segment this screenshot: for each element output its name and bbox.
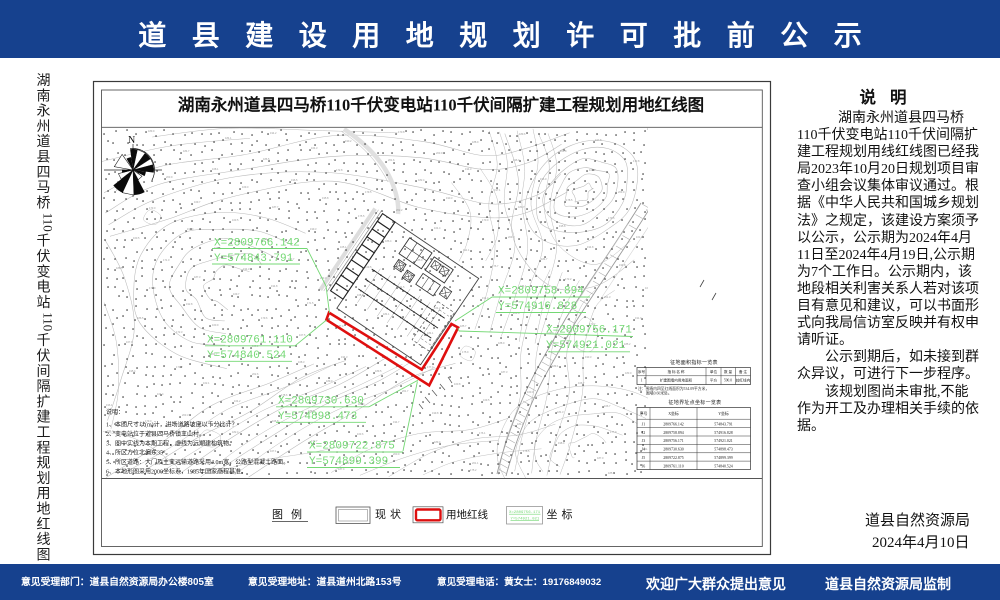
svg-text:194.8: 194.8 [271, 284, 278, 288]
svg-text:194.3: 194.3 [243, 267, 250, 271]
svg-text:201.6: 201.6 [388, 158, 395, 162]
svg-text:175.5: 175.5 [358, 214, 365, 218]
svg-text:194.8: 194.8 [619, 263, 626, 267]
svg-text:191.4: 191.4 [445, 272, 452, 276]
svg-text:167.9: 167.9 [126, 340, 133, 344]
svg-text:194.3: 194.3 [341, 355, 348, 359]
svg-text:2809761.110: 2809761.110 [663, 464, 683, 468]
svg-text:177.4: 177.4 [427, 365, 434, 369]
svg-text:J1: J1 [642, 422, 646, 426]
svg-text:160.8: 160.8 [454, 382, 461, 386]
svg-text:194.7: 194.7 [393, 420, 400, 424]
svg-text:161.2: 161.2 [636, 235, 643, 239]
svg-text:196.0: 196.0 [540, 177, 547, 181]
svg-text:574898.473: 574898.473 [714, 448, 733, 452]
svg-text:166.7: 166.7 [578, 381, 585, 385]
svg-text:2809758.894: 2809758.894 [663, 431, 683, 435]
svg-text:574921.021: 574921.021 [714, 439, 733, 443]
svg-text:2、变电站位于道县四马桥镇立山村。: 2、变电站位于道县四马桥镇立山村。 [106, 430, 205, 438]
svg-text:2809722.875: 2809722.875 [663, 456, 683, 460]
svg-text:指 标 名 称: 指 标 名 称 [667, 369, 684, 374]
svg-text:184.7: 184.7 [541, 257, 548, 261]
svg-text:3、图中实线为本期工程，虚线为远期建构筑物。: 3、图中实线为本期工程，虚线为远期建构筑物。 [106, 439, 235, 447]
svg-text:167.8: 167.8 [595, 138, 602, 142]
svg-text:195.4: 195.4 [187, 227, 194, 231]
svg-text:187.3: 187.3 [501, 370, 508, 374]
svg-text:175.2: 175.2 [470, 468, 477, 472]
svg-text:177.9: 177.9 [610, 430, 617, 434]
svg-text:187.3: 187.3 [194, 275, 201, 279]
svg-text:186.5: 186.5 [137, 316, 144, 320]
svg-text:178.9: 178.9 [149, 286, 156, 290]
svg-text:170.0: 170.0 [482, 218, 489, 222]
svg-text:203.9: 203.9 [436, 151, 443, 155]
svg-text:2809766.142: 2809766.142 [663, 422, 683, 426]
svg-text:Y=574916.828: Y=574916.828 [498, 301, 577, 313]
svg-text:189.6: 189.6 [519, 132, 526, 136]
svg-text:序号: 序号 [638, 369, 646, 374]
svg-text:169.0: 169.0 [242, 185, 249, 189]
svg-text:J6: J6 [642, 464, 646, 468]
svg-text:199.8: 199.8 [432, 411, 439, 415]
svg-text:180.7: 180.7 [518, 205, 525, 209]
svg-text:190.3: 190.3 [446, 196, 453, 200]
svg-text:201.7: 201.7 [402, 389, 409, 393]
svg-text:189.5: 189.5 [375, 369, 382, 373]
svg-text:193.3: 193.3 [585, 355, 592, 359]
svg-text:170.5: 170.5 [608, 216, 615, 220]
svg-text:168.1: 168.1 [212, 167, 219, 171]
svg-text:176.1: 176.1 [479, 431, 486, 435]
svg-text:6、本地形图采用2000坐标系，1985年国家高程基准。: 6、本地形图采用2000坐标系，1985年国家高程基准。 [106, 468, 247, 476]
svg-text:203.9: 203.9 [166, 175, 173, 179]
svg-text:189.4: 189.4 [434, 440, 441, 444]
svg-text:171.5: 171.5 [307, 301, 314, 305]
svg-text:183.0: 183.0 [625, 371, 632, 375]
svg-text:202.6: 202.6 [252, 372, 259, 376]
svg-text:2809730.630: 2809730.630 [663, 448, 683, 452]
svg-text:184.1: 184.1 [225, 136, 232, 140]
svg-text:169.5: 169.5 [483, 398, 490, 402]
svg-text:164.2: 164.2 [434, 306, 441, 310]
svg-text:169.7: 169.7 [194, 200, 201, 204]
svg-text:说明：: 说明： [106, 408, 124, 416]
svg-text:170.8: 170.8 [398, 130, 405, 134]
svg-text:194.3: 194.3 [465, 167, 472, 171]
svg-text:数 量: 数 量 [724, 369, 732, 374]
svg-text:Y=574843.791: Y=574843.791 [214, 253, 294, 265]
svg-text:574899.399: 574899.399 [714, 456, 733, 460]
svg-text:195.8: 195.8 [322, 196, 329, 200]
svg-text:163.6: 163.6 [357, 432, 364, 436]
svg-text:172.8: 172.8 [336, 168, 343, 172]
svg-text:173.2: 173.2 [176, 365, 183, 369]
svg-text:188.9: 188.9 [472, 140, 479, 144]
svg-text:189.1: 189.1 [552, 364, 559, 368]
svg-text:168.1: 168.1 [357, 293, 364, 297]
svg-text:征地界址点坐标一览表: 征地界址点坐标一览表 [668, 399, 721, 406]
svg-text:Y=574898.473: Y=574898.473 [278, 411, 357, 423]
svg-text:188.5: 188.5 [116, 266, 123, 270]
svg-text:196.5: 196.5 [291, 178, 298, 182]
svg-text:用地红线: 用地红线 [446, 508, 488, 521]
svg-text:171.0: 171.0 [163, 258, 170, 262]
svg-text:注：围墙内四至红线面积为534.09平方米，: 注：围墙内四至红线面积为534.09平方米， [638, 386, 709, 391]
svg-text:185.7: 185.7 [608, 471, 615, 475]
svg-text:184.3: 184.3 [557, 410, 564, 414]
svg-text:167.1: 167.1 [270, 449, 277, 453]
svg-text:168.3: 168.3 [298, 360, 305, 364]
svg-text:191.1: 191.1 [463, 248, 470, 252]
svg-text:单位: 单位 [710, 369, 718, 374]
svg-text:1、本图尺寸以(m)计，进场道路坡度以千分比计？: 1、本图尺寸以(m)计，进场道路坡度以千分比计？ [106, 421, 238, 429]
svg-text:围墙0.60米处。: 围墙0.60米处。 [646, 391, 672, 396]
svg-text:164.3: 164.3 [311, 146, 318, 150]
svg-text:172.3: 172.3 [176, 330, 183, 334]
svg-text:现状: 现状 [375, 507, 405, 521]
svg-text:163.8: 163.8 [560, 149, 567, 153]
svg-text:165.1: 165.1 [340, 245, 347, 249]
svg-text:188.9: 188.9 [498, 341, 505, 345]
svg-text:征地面积指标一览表: 征地面积指标一览表 [670, 359, 718, 366]
svg-text:203.9: 203.9 [618, 190, 625, 194]
svg-text:204.7: 204.7 [508, 235, 515, 239]
svg-text:平方: 平方 [710, 378, 718, 383]
svg-text:较红线内: 较红线内 [736, 378, 751, 383]
svg-text:Y=574840.524: Y=574840.524 [207, 350, 287, 362]
svg-text:185.7: 185.7 [460, 324, 467, 328]
svg-text:178.5: 178.5 [523, 449, 530, 453]
svg-text:195.8: 195.8 [559, 224, 566, 228]
svg-text:163.5: 163.5 [232, 218, 239, 222]
svg-text:175.9: 175.9 [462, 350, 469, 354]
svg-text:178.5: 178.5 [566, 198, 573, 202]
svg-text:187.7: 187.7 [272, 205, 279, 209]
svg-text:181.4: 181.4 [517, 422, 524, 426]
svg-text:4、所区方位北偏东35°。: 4、所区方位北偏东35°。 [106, 449, 171, 457]
svg-text:169.7: 169.7 [233, 292, 240, 296]
svg-text:182.4: 182.4 [418, 178, 425, 182]
svg-text:194.2: 194.2 [270, 131, 277, 135]
svg-text:179.5: 179.5 [365, 190, 372, 194]
svg-text:194.8: 194.8 [587, 245, 594, 249]
svg-text:Y=574921.021: Y=574921.021 [546, 340, 626, 352]
svg-text:198.4: 198.4 [558, 441, 565, 445]
svg-text:186.5: 186.5 [263, 157, 270, 161]
svg-text:574843.791: 574843.791 [714, 422, 733, 426]
svg-text:Y=574899.399: Y=574899.399 [309, 456, 388, 468]
svg-text:N: N [128, 135, 135, 146]
svg-text:590.0: 590.0 [724, 379, 732, 383]
svg-text:190.2: 190.2 [345, 139, 352, 143]
svg-text:195.4: 195.4 [129, 369, 136, 373]
svg-text:184.1: 184.1 [427, 331, 434, 335]
svg-text:172.2: 172.2 [565, 277, 572, 281]
svg-text:X=2809761.110: X=2809761.110 [207, 335, 293, 347]
svg-text:186.4: 186.4 [385, 239, 392, 243]
svg-text:197.1: 197.1 [494, 188, 501, 192]
svg-text:5、所区道路：大门及主变运输道路采用4.0m宽，公路型混凝土: 5、所区道路：大门及主变运输道路采用4.0m宽，公路型混凝土路面。 [106, 458, 289, 466]
svg-text:196.4: 196.4 [513, 158, 520, 162]
svg-text:164.2: 164.2 [234, 399, 241, 403]
svg-text:191.5: 191.5 [398, 285, 405, 289]
svg-text:160.2: 160.2 [589, 168, 596, 172]
svg-text:Y坐标: Y坐标 [718, 411, 729, 416]
svg-text:160.9: 160.9 [212, 323, 219, 327]
svg-text:166.7: 166.7 [604, 404, 611, 408]
svg-text:160.0: 160.0 [527, 390, 534, 394]
svg-text:162.1: 162.1 [203, 381, 210, 385]
svg-text:203.3: 203.3 [182, 413, 189, 417]
svg-text:196.1: 196.1 [106, 403, 113, 407]
svg-text:200.9: 200.9 [393, 452, 400, 456]
svg-text:X=2809758.894: X=2809758.894 [498, 286, 584, 298]
svg-text:160.5: 160.5 [133, 236, 140, 240]
svg-text:扩建围墙内用地面积: 扩建围墙内用地面积 [660, 378, 693, 383]
svg-text:187.0: 187.0 [597, 456, 604, 460]
svg-text:169.5: 169.5 [365, 265, 372, 269]
svg-text:J4: J4 [642, 448, 646, 452]
svg-text:191.7: 191.7 [635, 316, 642, 320]
svg-text:2809756.171: 2809756.171 [663, 439, 683, 443]
svg-text:X坐标: X坐标 [668, 411, 679, 416]
svg-text:202.2: 202.2 [396, 208, 403, 212]
svg-text:164.4: 164.4 [434, 226, 441, 230]
svg-text:189.0: 189.0 [326, 379, 333, 383]
svg-text:184.1: 184.1 [383, 312, 390, 316]
svg-text:J5: J5 [642, 456, 646, 460]
svg-text:坐标: 坐标 [547, 507, 577, 521]
svg-text:574916.828: 574916.828 [714, 431, 733, 435]
svg-text:176.7: 176.7 [492, 264, 499, 268]
svg-text:164.4: 164.4 [157, 392, 164, 396]
svg-text:X=2809766.142: X=2809766.142 [214, 238, 300, 250]
svg-text:201.1: 201.1 [472, 461, 479, 465]
svg-text:图例: 图例 [272, 507, 310, 521]
svg-text:574840.524: 574840.524 [714, 464, 733, 468]
svg-text:184.7: 184.7 [183, 149, 190, 153]
svg-text:201.3: 201.3 [604, 295, 611, 299]
svg-text:173.0: 173.0 [149, 206, 156, 210]
svg-text:167.5: 167.5 [299, 333, 306, 337]
svg-text:备 注: 备 注 [739, 369, 747, 374]
svg-text:X=2809722.875: X=2809722.875 [309, 441, 395, 453]
svg-text:189.9: 189.9 [148, 129, 155, 133]
svg-text:J3: J3 [642, 439, 646, 443]
svg-text:179.6: 179.6 [261, 316, 268, 320]
svg-text:199.3: 199.3 [310, 227, 317, 231]
svg-text:湖南永州道县四马桥110千伏变电站110千伏间隔扩建工程规划: 湖南永州道县四马桥110千伏变电站110千伏间隔扩建工程规划用地红线图 [178, 95, 704, 115]
svg-text:172.8: 172.8 [633, 159, 640, 163]
svg-text:192.8: 192.8 [186, 302, 193, 306]
svg-text:序号: 序号 [640, 411, 648, 416]
svg-text:185.0: 185.0 [416, 258, 423, 262]
svg-text:J2: J2 [642, 431, 646, 435]
svg-text:X=2809730.630: X=2809730.630 [278, 396, 364, 408]
svg-text:1: 1 [641, 379, 643, 383]
svg-text:182.4: 182.4 [232, 430, 239, 434]
